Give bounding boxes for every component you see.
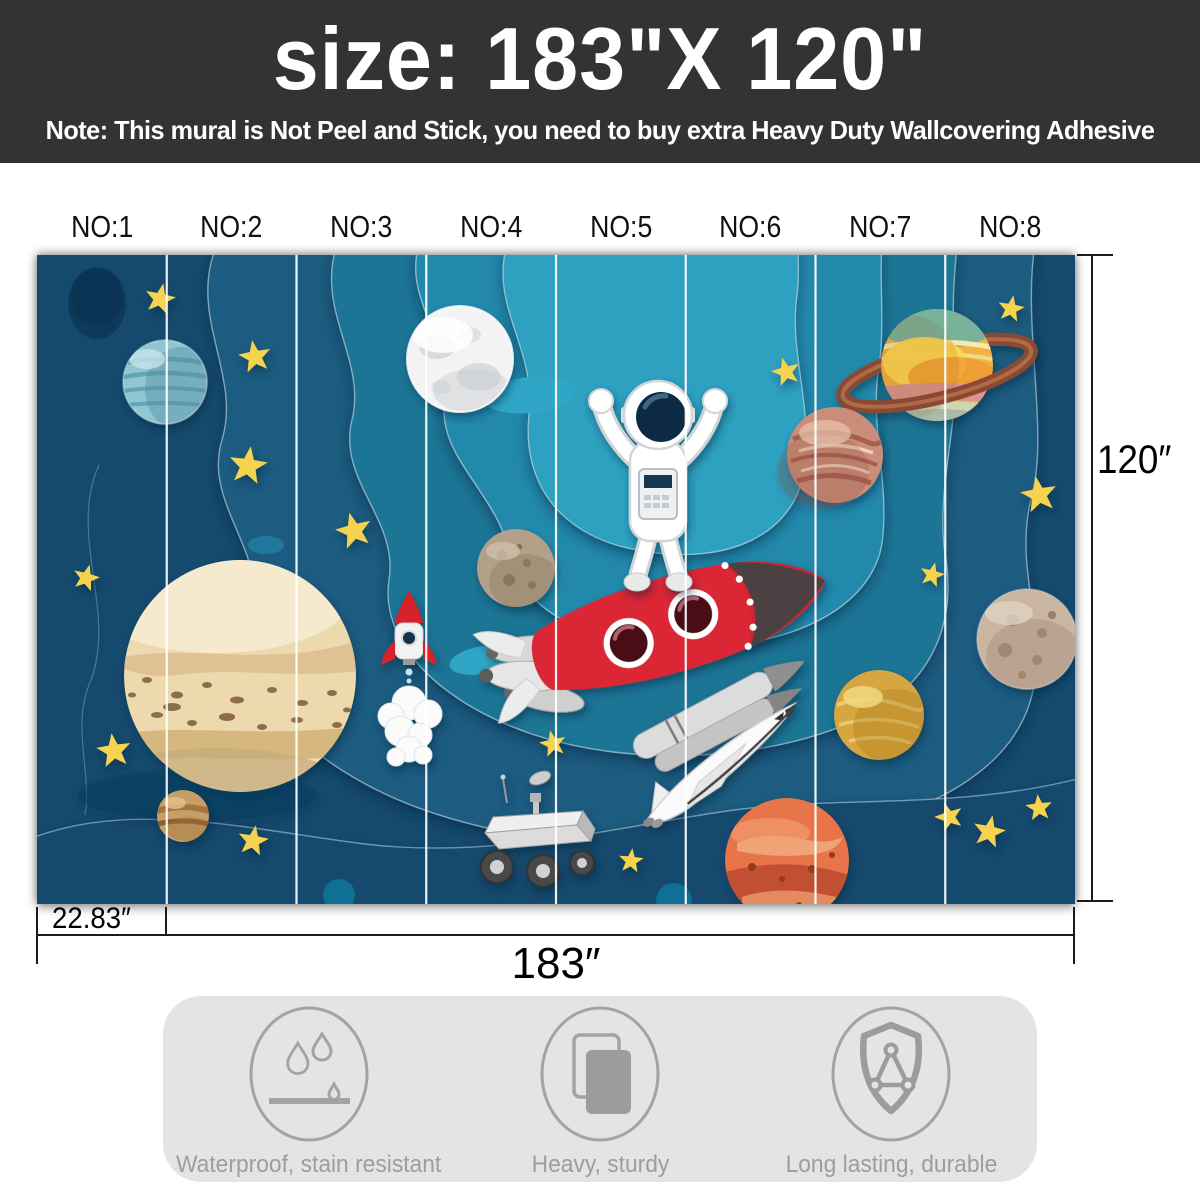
- panel-label-1: NO:1: [71, 209, 133, 245]
- header-banner: size: 183"X 120" Note: This mural is Not…: [0, 0, 1200, 163]
- panel-width-label: 22.83″: [52, 902, 131, 936]
- feature-durable-label: Long lasting, durable: [785, 1151, 997, 1179]
- panel-width-tick: [165, 907, 167, 935]
- total-width-label: 183″: [37, 939, 1075, 989]
- mural-image: [37, 255, 1075, 904]
- panel-label-7: NO:7: [849, 209, 911, 245]
- panel-label-2: NO:2: [201, 209, 263, 245]
- panel-label-8: NO:8: [979, 209, 1041, 245]
- feature-waterproof-label: Waterproof, stain resistant: [176, 1151, 441, 1179]
- height-dim-bottom-tick: [1077, 900, 1113, 902]
- panel-label-3: NO:3: [330, 209, 392, 245]
- width-dim-line: [37, 934, 1075, 936]
- waterproof-icon: [238, 1002, 380, 1155]
- height-dim-top-tick: [1077, 254, 1113, 256]
- adhesive-note: Note: This mural is Not Peel and Stick, …: [18, 115, 1182, 146]
- heavy-sturdy-icon: [529, 1002, 671, 1155]
- feature-heavy-sturdy-label: Heavy, sturdy: [531, 1151, 669, 1179]
- panel-label-5: NO:5: [590, 209, 652, 245]
- feature-durable: Long lasting, durable: [746, 996, 1037, 1179]
- panel-label-4: NO:4: [460, 209, 522, 245]
- height-dim-line: [1091, 256, 1093, 902]
- height-dim-label: 120″: [1097, 438, 1171, 483]
- feature-waterproof: Waterproof, stain resistant: [163, 996, 454, 1179]
- features-panel: Waterproof, stain resistant Heavy, sturd…: [163, 996, 1037, 1182]
- shield-icon: [820, 1002, 962, 1155]
- panel-label-6: NO:6: [720, 209, 782, 245]
- moon: [407, 306, 513, 413]
- size-title: size: 183"X 120": [36, 8, 1164, 110]
- panel-number-row: NO:1 NO:2 NO:3 NO:4 NO:5 NO:6 NO:7 NO:8: [37, 209, 1075, 247]
- feature-heavy-sturdy: Heavy, sturdy: [454, 996, 745, 1179]
